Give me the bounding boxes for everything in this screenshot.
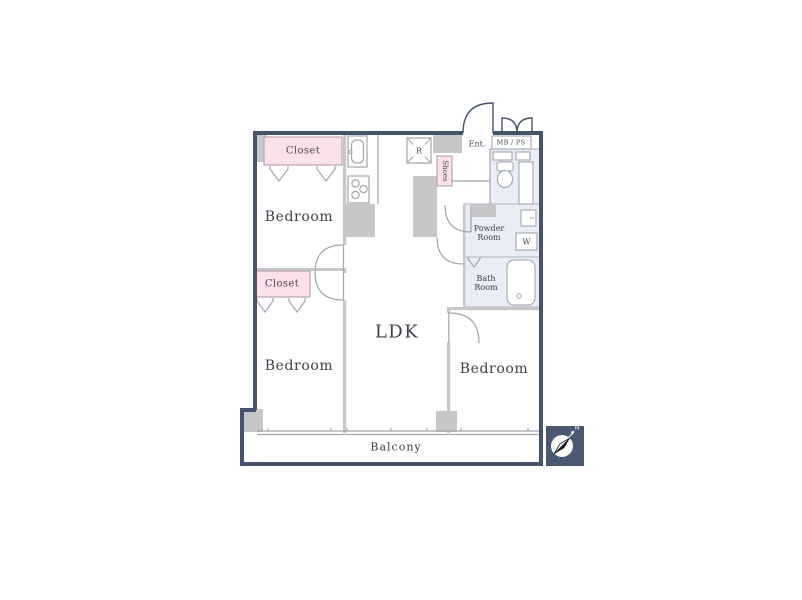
kitchen-fixtures bbox=[348, 136, 369, 203]
bedroom-top-left-label: Bedroom bbox=[265, 209, 334, 225]
closet-top-label: Closet bbox=[286, 145, 320, 157]
mbps-door-right bbox=[517, 118, 532, 133]
bath-room-label: Bath Room bbox=[468, 274, 504, 292]
balcony-label: Balcony bbox=[370, 442, 421, 455]
mb-ps-label: MB / PS bbox=[497, 139, 526, 146]
entrance-wall-block bbox=[433, 133, 462, 153]
mbps-door-left bbox=[502, 118, 517, 133]
bedroom-bottom-right-door bbox=[449, 313, 479, 343]
pillar-bottom-middle bbox=[436, 411, 457, 432]
bedroom-bottom-left-label: Bedroom bbox=[265, 358, 334, 374]
shoes-label: Shoes bbox=[440, 160, 448, 181]
bedroom-bottom-left-door bbox=[315, 272, 343, 300]
powder-room-label: Powder Room bbox=[468, 224, 510, 242]
entrance-label: Ent. bbox=[469, 139, 486, 148]
shaft-box bbox=[519, 162, 533, 204]
floor-plan: Closet Bedroom Closet Bedroom LDK Bedroo… bbox=[0, 0, 802, 600]
kitchen-end-wall bbox=[346, 204, 375, 237]
washer-label: W bbox=[522, 237, 530, 246]
ldk-label: LDK bbox=[375, 323, 419, 344]
floor-plan-drawing bbox=[0, 0, 802, 600]
entrance-door-arc bbox=[463, 103, 493, 133]
ldk-door bbox=[437, 237, 463, 264]
refrigerator-label: R bbox=[416, 146, 422, 155]
toilet-tank bbox=[497, 162, 513, 171]
bedroom-bottom-right-label: Bedroom bbox=[460, 361, 529, 377]
pillar-bottom-left bbox=[242, 409, 263, 432]
kitchen-sink-basin bbox=[352, 140, 364, 163]
north-label: N bbox=[575, 426, 580, 433]
hall-wall-block bbox=[413, 176, 437, 237]
toilet-bowl bbox=[498, 171, 513, 188]
closet-middle-label: Closet bbox=[265, 278, 299, 290]
bathtub bbox=[507, 260, 535, 305]
